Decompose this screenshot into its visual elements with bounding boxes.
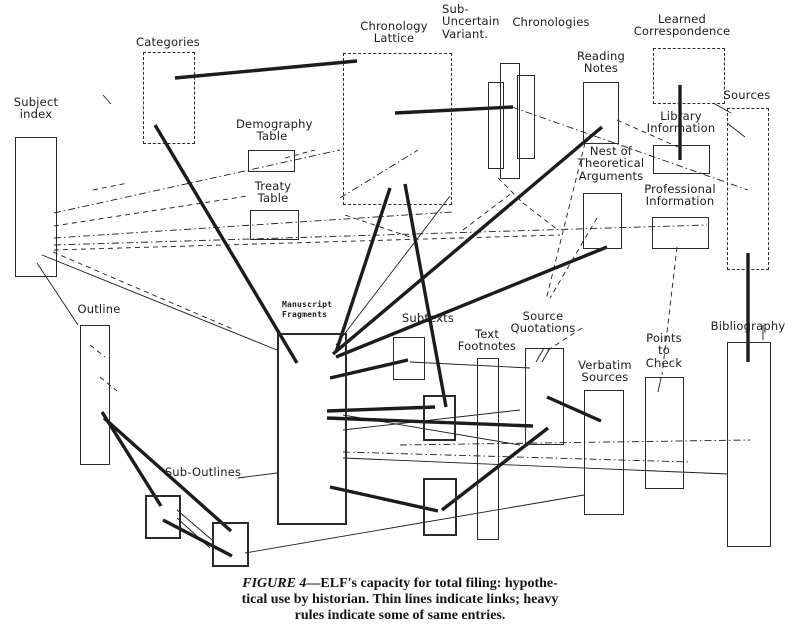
figure-caption-line3: rules indicate some of same entries. [295, 608, 506, 623]
node-box-subtexts-top [393, 337, 425, 380]
node-box-subtexts-middle [423, 395, 456, 441]
node-box-sub-outline-2 [212, 522, 249, 567]
link-line [498, 178, 523, 203]
label-nest-theoretical: Nest of Theoretical Arguments [576, 145, 646, 182]
node-box-chronology-lattice [343, 53, 452, 205]
link-line [53, 252, 235, 330]
label-chronology-lattice: Chronology Lattice [352, 20, 436, 45]
node-box-demography-table [248, 150, 295, 172]
label-library-information: Library Information [644, 110, 718, 135]
label-outline: Outline [70, 303, 128, 315]
node-box-categories [143, 52, 195, 144]
label-subject-index: Subject index [8, 96, 64, 121]
node-box-treaty-table [250, 210, 299, 240]
label-demography-table: Demography Table [236, 118, 308, 143]
figure-caption-line1: —ELF's capacity for total filing: hypoth… [306, 576, 557, 591]
link-line [523, 203, 558, 230]
node-box-nest-theoretical [583, 193, 622, 249]
link-line [103, 95, 111, 104]
node-box-subject-index [15, 137, 57, 277]
node-box-sub-outline-1 [145, 495, 181, 539]
label-points-to-check: Points to Check [640, 332, 688, 369]
label-manuscript-fragments: Manuscript Fragments [282, 300, 344, 321]
node-box-reading-notes [583, 82, 619, 144]
figure-4-diagram: Subject index Categories Demography Tabl… [0, 0, 794, 634]
label-categories: Categories [136, 36, 200, 48]
node-box-subtexts-bottom [423, 478, 457, 536]
label-bibliography: Bibliography [708, 320, 788, 332]
link-line [54, 196, 248, 226]
heavy-rule-line [175, 61, 357, 78]
node-box-verbatim-sources [584, 390, 624, 515]
label-professional-information: Professional Information [644, 183, 716, 208]
figure-caption: FIGURE 4—ELF's capacity for total filing… [205, 576, 595, 624]
label-reading-notes: Reading Notes [574, 50, 628, 75]
link-line [93, 183, 128, 190]
node-box-text-footnotes [477, 358, 499, 540]
link-line [410, 362, 530, 368]
node-box-bibliography [727, 342, 771, 547]
node-box-sources [727, 108, 769, 270]
node-box-learned-correspondence [653, 48, 725, 104]
label-learned-correspondence: Learned Correspondence [633, 13, 731, 38]
node-box-manuscript-fragments [277, 333, 347, 525]
label-source-quotations: Source Quotations [506, 310, 580, 335]
node-box-source-quotations [525, 348, 564, 445]
node-box-professional-information [652, 217, 709, 249]
figure-caption-number: FIGURE 4 [242, 576, 306, 591]
label-subtexts: Subtexts [399, 312, 457, 324]
node-box-library-information [653, 145, 710, 174]
label-treaty-table: Treaty Table [248, 180, 298, 205]
label-verbatim-sources: Verbatim Sources [572, 359, 638, 384]
node-box-outline [80, 325, 110, 465]
label-sub-uncertain-variant: Sub- Uncertain Variant. [442, 3, 512, 40]
label-sources: Sources [720, 89, 774, 101]
label-chronologies: Chronologies [510, 16, 592, 28]
figure-caption-line2: tical use by historian. Thin lines indic… [242, 592, 559, 607]
link-line [177, 518, 210, 548]
node-box-points-to-check [645, 377, 684, 489]
label-sub-outlines: Sub-Outlines [162, 466, 244, 478]
node-box-chronologies-c [517, 75, 535, 159]
